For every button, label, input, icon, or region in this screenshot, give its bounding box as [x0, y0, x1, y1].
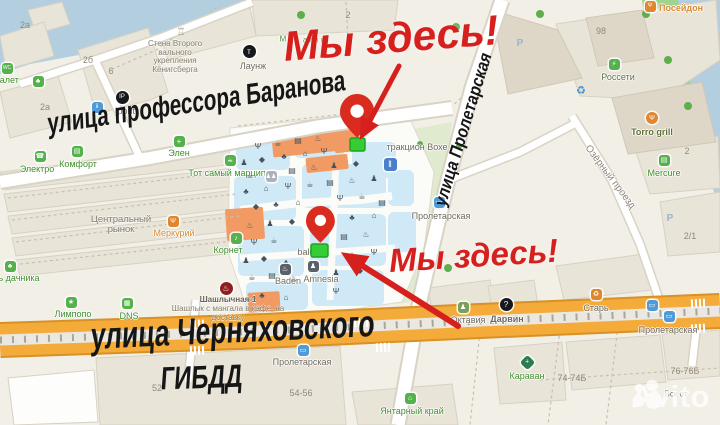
marker-square-top: [350, 138, 365, 151]
watermark: Avito: [631, 379, 710, 415]
arrow-top: [364, 66, 399, 132]
location-pin-top: [340, 94, 374, 138]
map-canvas[interactable]: туалетWCЭлектро☎Комфорт▤Элен+Тот самый м…: [0, 0, 720, 425]
marker-square-bottom: [311, 244, 328, 257]
avito-logo-icon: [631, 379, 663, 411]
location-pin-bottom: [306, 206, 335, 243]
